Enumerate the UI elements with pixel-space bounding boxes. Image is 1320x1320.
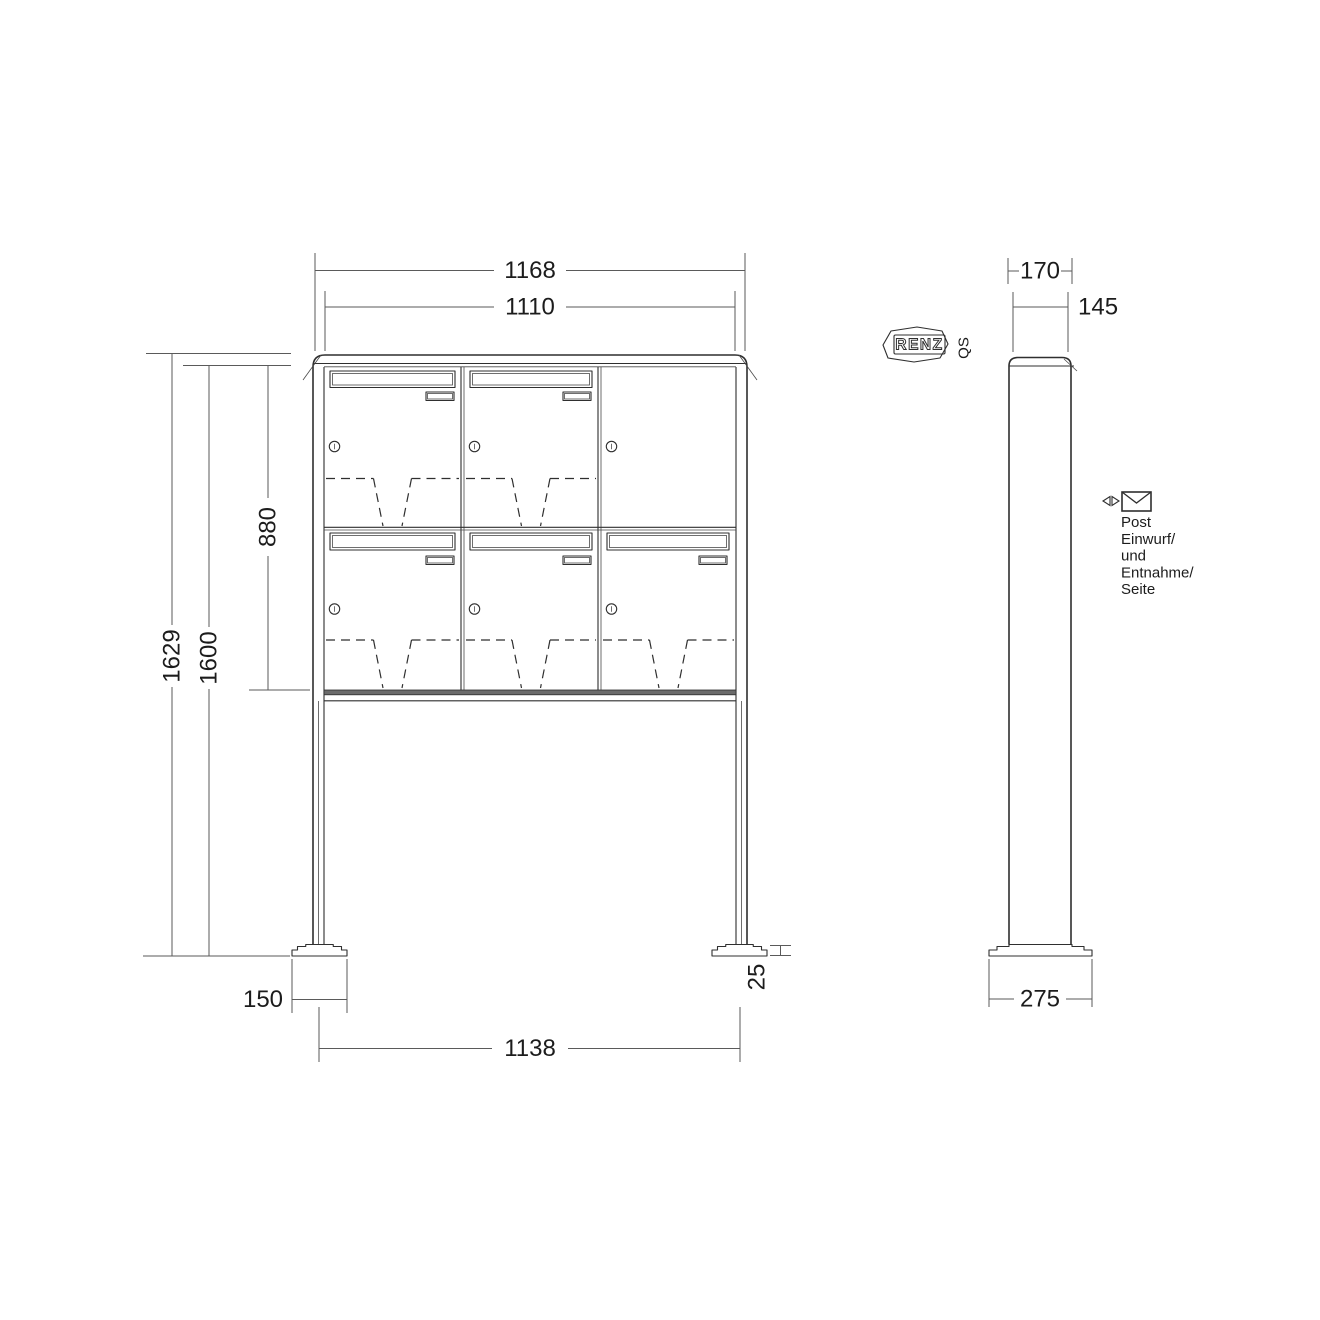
dim-label-box-bank-width: 1110 [505, 294, 555, 321]
mail-slot-flap [330, 371, 455, 388]
renz-logo: RENZ [883, 327, 948, 362]
dim-post-height: 1600 [183, 366, 291, 957]
brand-name: RENZ [895, 337, 943, 354]
letter-chute-hidden-lines [326, 479, 459, 527]
annotation-line: und [1121, 548, 1146, 565]
name-plate [699, 556, 727, 565]
double-arrow-icon [1103, 497, 1119, 506]
mail-slot-flap [330, 533, 455, 550]
lock-icon [469, 604, 479, 614]
dim-label-depth-box: 145 [1078, 294, 1118, 321]
envelope-icon [1122, 492, 1151, 511]
dim-label-post-height: 1600 [196, 631, 223, 684]
annotation-line: Seite [1121, 581, 1155, 598]
front-view [143, 355, 767, 956]
name-plate [426, 392, 454, 401]
dim-label-overall-height: 1629 [159, 629, 186, 682]
annotation-line: Entnahme/ [1121, 564, 1194, 581]
cabinet-outline [303, 355, 757, 945]
annotation-line: Einwurf/ [1121, 531, 1176, 548]
dim-depth-box: 145 [1013, 292, 1118, 352]
mailbox-door-5 [466, 533, 596, 688]
technical-drawing: 1168 1110 1629 1600 880 150 1138 [0, 0, 1320, 1320]
mailbox-door-4 [326, 533, 459, 688]
mail-slot-flap [607, 533, 729, 550]
side-foot-plate [989, 945, 1092, 957]
dim-label-foot-spacing: 1138 [504, 1035, 556, 1062]
lock-icon [606, 441, 616, 451]
letter-chute-hidden-lines [326, 640, 459, 688]
corner-weld-tick [739, 355, 757, 380]
bottom-band [324, 690, 736, 695]
annotation-line: Post [1121, 514, 1152, 531]
letter-chute-hidden-lines [603, 640, 734, 688]
mailbox-door-1 [326, 371, 459, 526]
drawing-canvas: 1168 1110 1629 1600 880 150 1138 [0, 0, 1320, 1320]
dim-depth-overall: 170 [1008, 258, 1072, 285]
lock-icon [329, 604, 339, 614]
dim-box-bank-width: 1110 [325, 291, 735, 351]
dim-label-depth-overall: 170 [1020, 258, 1060, 285]
lock-icon [329, 441, 339, 451]
dim-label-foot-depth: 275 [1020, 986, 1060, 1013]
mail-slot-flap [470, 371, 592, 388]
lock-icon [469, 441, 479, 451]
qs-label: QS [956, 337, 973, 359]
lock-icon [606, 604, 616, 614]
cabinet-grid [324, 367, 736, 701]
letter-chute-hidden-lines [466, 640, 596, 688]
foot-plate-left [292, 945, 347, 957]
name-plate [426, 556, 454, 565]
foot-plate-right [712, 945, 767, 957]
name-plate [563, 556, 591, 565]
name-plate [563, 392, 591, 401]
dim-foot-depth: 275 [989, 959, 1092, 1013]
dim-label-overall-width: 1168 [504, 257, 556, 284]
dim-label-foot-height: 25 [744, 964, 771, 991]
dim-foot-width: 150 [243, 959, 347, 1013]
mailbox-door-3 [606, 441, 616, 451]
side-view [989, 358, 1092, 957]
side-post [1009, 358, 1077, 945]
dim-foot-spacing: 1138 [319, 1007, 740, 1062]
corner-weld-tick [303, 355, 321, 380]
mail-annotation: Post Einwurf/ und Entnahme/ Seite [1103, 492, 1194, 598]
dim-box-bank-height: 880 [249, 366, 310, 691]
mailbox-door-2 [466, 371, 596, 526]
dim-label-box-bank-height: 880 [255, 507, 282, 547]
letter-chute-hidden-lines [466, 479, 596, 527]
mailbox-door-6 [603, 533, 734, 688]
dim-label-foot-width: 150 [243, 986, 283, 1013]
mail-slot-flap [470, 533, 592, 550]
